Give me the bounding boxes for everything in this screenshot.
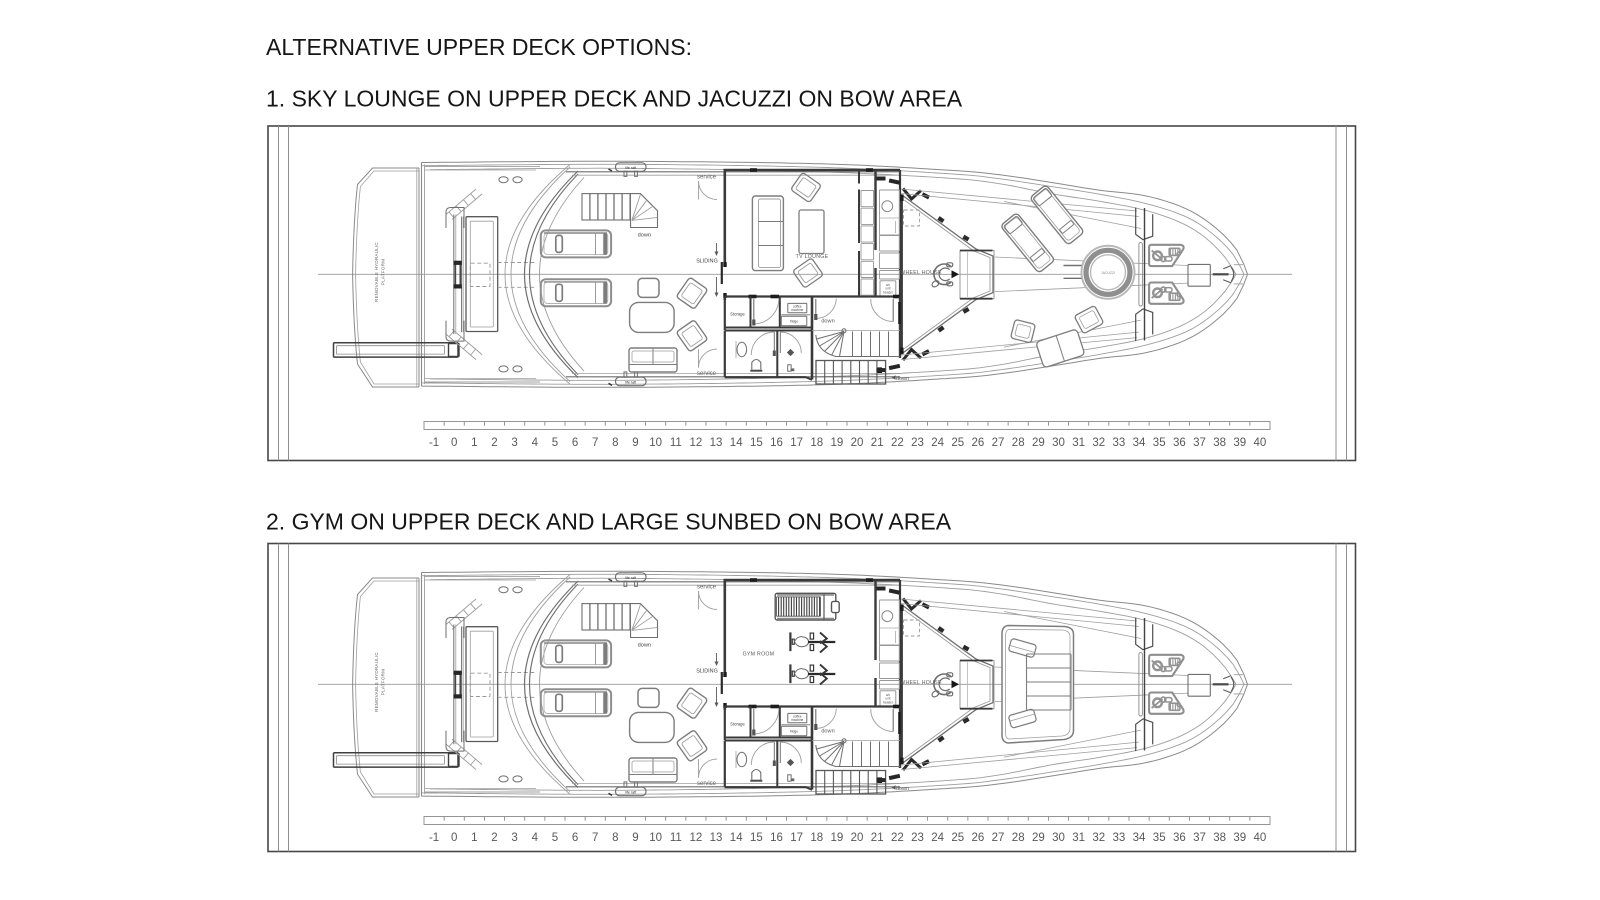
svg-text:8: 8 (612, 437, 618, 449)
svg-text:15: 15 (750, 437, 763, 449)
svg-text:30: 30 (1052, 832, 1065, 844)
svg-text:12: 12 (690, 437, 703, 449)
svg-text:11: 11 (670, 437, 682, 449)
svg-text:9: 9 (632, 832, 638, 844)
svg-text:26: 26 (972, 437, 985, 449)
svg-text:30: 30 (1052, 437, 1065, 449)
svg-text:38: 38 (1213, 832, 1226, 844)
svg-text:machine: machine (791, 308, 803, 312)
svg-text:service: service (697, 175, 717, 181)
svg-text:16: 16 (770, 437, 783, 449)
svg-text:40: 40 (1254, 437, 1267, 449)
svg-text:39: 39 (1233, 437, 1246, 449)
svg-text:1: 1 (471, 832, 477, 844)
svg-text:5: 5 (552, 437, 558, 449)
svg-text:header: header (883, 290, 894, 294)
svg-text:29: 29 (1032, 832, 1045, 844)
svg-text:service: service (697, 371, 717, 377)
svg-text:down: down (821, 319, 834, 325)
svg-text:19: 19 (831, 437, 844, 449)
svg-text:21: 21 (871, 437, 884, 449)
svg-text:5: 5 (552, 832, 558, 844)
svg-text:JACUZZI: JACUZZI (1101, 271, 1115, 275)
svg-text:27: 27 (992, 832, 1005, 844)
svg-text:3: 3 (511, 832, 517, 844)
svg-text:9: 9 (632, 437, 638, 449)
svg-text:33: 33 (1113, 832, 1126, 844)
svg-text:20: 20 (851, 437, 864, 449)
svg-text:down: down (638, 643, 651, 649)
svg-text:4: 4 (532, 832, 539, 844)
svg-text:12: 12 (690, 832, 703, 844)
svg-text:PLATFORM: PLATFORM (381, 259, 386, 285)
svg-text:13: 13 (710, 832, 723, 844)
svg-text:3: 3 (511, 437, 517, 449)
svg-text:37: 37 (1193, 832, 1206, 844)
svg-text:7: 7 (592, 832, 598, 844)
svg-text:10: 10 (649, 832, 662, 844)
svg-text:SLIDING: SLIDING (696, 669, 718, 675)
svg-text:0: 0 (451, 437, 457, 449)
svg-text:32: 32 (1092, 437, 1105, 449)
svg-text:31: 31 (1072, 832, 1085, 844)
svg-text:down: down (638, 233, 651, 239)
svg-text:18: 18 (810, 832, 823, 844)
svg-text:36: 36 (1173, 832, 1186, 844)
svg-text:33: 33 (1113, 437, 1126, 449)
svg-text:SLIDING: SLIDING (696, 259, 718, 265)
svg-text:22: 22 (891, 832, 904, 844)
svg-text:GYM ROOM: GYM ROOM (743, 651, 775, 657)
svg-text:REMOVABLE HYDRAULIC: REMOVABLE HYDRAULIC (374, 652, 379, 712)
svg-text:down: down (821, 729, 834, 735)
svg-text:fridge: fridge (790, 730, 798, 734)
svg-text:14: 14 (730, 437, 743, 449)
svg-text:PLATFORM: PLATFORM (381, 669, 386, 695)
svg-text:18: 18 (810, 437, 823, 449)
svg-text:WHEEL HOUSE: WHEEL HOUSE (900, 270, 942, 276)
svg-text:11: 11 (670, 832, 682, 844)
svg-text:life raft: life raft (625, 380, 636, 384)
svg-text:2: 2 (491, 832, 497, 844)
svg-text:23: 23 (911, 437, 924, 449)
svg-text:13: 13 (710, 437, 723, 449)
svg-text:22: 22 (891, 437, 904, 449)
svg-text:1: 1 (471, 437, 477, 449)
svg-text:27: 27 (992, 437, 1005, 449)
svg-text:34: 34 (1133, 437, 1146, 449)
svg-text:38: 38 (1213, 437, 1226, 449)
svg-text:37: 37 (1193, 437, 1206, 449)
svg-text:35: 35 (1153, 832, 1166, 844)
svg-text:service: service (697, 585, 717, 591)
svg-text:life raft: life raft (625, 576, 636, 580)
svg-text:4: 4 (532, 437, 539, 449)
svg-text:life raft: life raft (625, 166, 636, 170)
svg-text:Storage: Storage (730, 722, 745, 727)
svg-text:fridge: fridge (790, 320, 798, 324)
svg-text:machine: machine (791, 718, 803, 722)
svg-text:service: service (697, 781, 717, 787)
svg-text:2: 2 (491, 437, 497, 449)
svg-text:19: 19 (831, 832, 844, 844)
svg-text:0: 0 (451, 832, 457, 844)
svg-text:1. SKY LOUNGE ON UPPER DECK AN: 1. SKY LOUNGE ON UPPER DECK AND JACUZZI … (266, 86, 963, 112)
svg-text:25: 25 (951, 832, 964, 844)
svg-text:15: 15 (750, 832, 763, 844)
svg-text:17: 17 (790, 437, 803, 449)
svg-text:23: 23 (911, 832, 924, 844)
svg-text:40: 40 (1254, 832, 1267, 844)
svg-text:6: 6 (572, 437, 578, 449)
svg-text:Storage: Storage (730, 312, 745, 317)
svg-text:life raft: life raft (625, 790, 636, 794)
svg-text:24: 24 (931, 437, 944, 449)
svg-text:header: header (883, 700, 894, 704)
svg-text:-1: -1 (429, 832, 439, 844)
svg-text:20: 20 (851, 832, 864, 844)
svg-text:6: 6 (572, 832, 578, 844)
svg-text:16: 16 (770, 832, 783, 844)
svg-text:8: 8 (612, 832, 618, 844)
svg-text:36: 36 (1173, 437, 1186, 449)
svg-text:21: 21 (871, 832, 884, 844)
svg-text:10: 10 (649, 437, 662, 449)
svg-text:35: 35 (1153, 437, 1166, 449)
svg-text:26: 26 (972, 832, 985, 844)
svg-text:28: 28 (1012, 437, 1025, 449)
svg-text:17: 17 (790, 832, 803, 844)
svg-text:28: 28 (1012, 832, 1025, 844)
svg-text:25: 25 (951, 437, 964, 449)
svg-text:down: down (896, 786, 909, 792)
svg-text:2. GYM ON UPPER DECK AND LARGE: 2. GYM ON UPPER DECK AND LARGE SUNBED ON… (266, 509, 952, 535)
svg-text:29: 29 (1032, 437, 1045, 449)
svg-text:TV LOUNGE: TV LOUNGE (796, 254, 829, 260)
svg-text:39: 39 (1233, 832, 1246, 844)
svg-text:14: 14 (730, 832, 743, 844)
svg-text:31: 31 (1072, 437, 1085, 449)
svg-text:32: 32 (1092, 832, 1105, 844)
svg-text:24: 24 (931, 832, 944, 844)
svg-text:REMOVABLE HYDRAULIC: REMOVABLE HYDRAULIC (374, 242, 379, 302)
svg-text:34: 34 (1133, 832, 1146, 844)
svg-text:down: down (896, 376, 909, 382)
svg-text:7: 7 (592, 437, 598, 449)
svg-text:-1: -1 (429, 437, 439, 449)
svg-text:ALTERNATIVE UPPER DECK OPTIONS: ALTERNATIVE UPPER DECK OPTIONS: (266, 34, 692, 60)
svg-text:WHEEL HOUSE: WHEEL HOUSE (900, 680, 942, 686)
